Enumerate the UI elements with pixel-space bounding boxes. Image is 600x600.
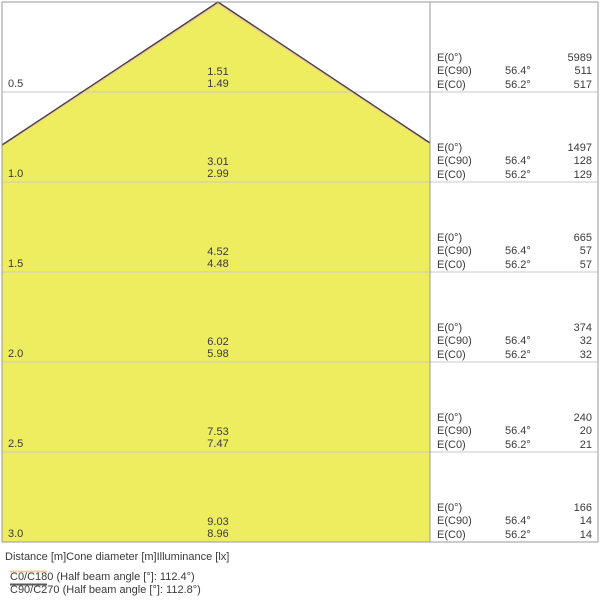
illuminance-value: 14	[553, 529, 592, 542]
illuminance-value: 129	[553, 169, 592, 182]
illuminance-value: 517	[553, 79, 592, 92]
illuminance-row: E(C0) 56.2° 57	[437, 259, 592, 272]
distance-label: 0.5	[8, 78, 23, 91]
beam-angle-value	[505, 412, 553, 425]
illuminance-value: 20	[553, 425, 592, 438]
cone-diameter-c0: 2.99	[178, 168, 258, 180]
photometric-label: E(C0)	[437, 259, 505, 272]
cone-diameter-label: 9.03 8.96	[178, 516, 258, 540]
illuminance-row: E(0°) 240	[437, 412, 592, 425]
illuminance-row: E(C90) 56.4° 14	[437, 515, 592, 528]
cone-diameter-c0: 4.48	[178, 258, 258, 270]
cone-diameter-c90: 9.03	[178, 516, 258, 528]
illuminance-row: E(C0) 56.2° 32	[437, 349, 592, 362]
beam-angle-value: 56.2°	[505, 79, 553, 92]
distance-label: 3.0	[8, 528, 23, 541]
beam-angle-value: 56.4°	[505, 425, 553, 438]
photometric-label: E(0°)	[437, 232, 505, 245]
beam-angle-value: 56.2°	[505, 349, 553, 362]
distance-label: 2.5	[8, 438, 23, 451]
illuminance-block: E(0°) 240 E(C90) 56.4° 20 E(C0) 56.2° 21	[430, 412, 598, 452]
cone-diameter-c0: 5.98	[178, 348, 258, 360]
illuminance-value: 57	[553, 245, 592, 258]
beam-angle-value: 56.4°	[505, 515, 553, 528]
illuminance-row: E(C0) 56.2° 21	[437, 439, 592, 452]
beam-angle-value	[505, 142, 553, 155]
illuminance-value: 240	[553, 412, 592, 425]
illuminance-value: 32	[553, 335, 592, 348]
illuminance-block: E(0°) 374 E(C90) 56.4° 32 E(C0) 56.2° 32	[430, 322, 598, 362]
illuminance-value: 511	[553, 65, 592, 78]
photometric-label: E(C90)	[437, 65, 505, 78]
cone-diameter-c90: 4.52	[178, 246, 258, 258]
distance-label: 1.5	[8, 258, 23, 271]
cone-diameter-c90: 7.53	[178, 426, 258, 438]
illuminance-row: E(C0) 56.2° 517	[437, 79, 592, 92]
legend-item-c0: C0/C180 (Half beam angle [°]: 112.4°)	[10, 570, 195, 583]
photometric-label: E(0°)	[437, 412, 505, 425]
photometric-label: E(0°)	[437, 142, 505, 155]
illuminance-row: E(C90) 56.4° 20	[437, 425, 592, 438]
beam-angle-value: 56.4°	[505, 155, 553, 168]
photometric-label: E(C0)	[437, 79, 505, 92]
beam-angle-value: 56.4°	[505, 335, 553, 348]
illuminance-block: E(0°) 5989 E(C90) 56.4° 511 E(C0) 56.2° …	[430, 52, 598, 92]
cone-diameter-label: 4.52 4.48	[178, 246, 258, 270]
photometric-label: E(0°)	[437, 322, 505, 335]
illuminance-row: E(0°) 1497	[437, 142, 592, 155]
cone-diameter-c0: 1.49	[178, 78, 258, 90]
cone-diameter-c0: 7.47	[178, 438, 258, 450]
illuminance-row: E(0°) 5989	[437, 52, 592, 65]
beam-angle-value: 56.4°	[505, 65, 553, 78]
illuminance-row: E(C90) 56.4° 128	[437, 155, 592, 168]
beam-angle-value: 56.2°	[505, 259, 553, 272]
beam-angle-value	[505, 322, 553, 335]
photometric-label: E(C90)	[437, 515, 505, 528]
beam-angle-value: 56.4°	[505, 245, 553, 258]
illuminance-row: E(0°) 374	[437, 322, 592, 335]
cone-diameter-label: 1.51 1.49	[178, 66, 258, 90]
illuminance-row: E(C0) 56.2° 129	[437, 169, 592, 182]
illuminance-value: 21	[553, 439, 592, 452]
illuminance-value: 665	[553, 232, 592, 245]
beam-angle-value	[505, 52, 553, 65]
photometric-label: E(C90)	[437, 155, 505, 168]
illuminance-row: E(0°) 665	[437, 232, 592, 245]
c90-line-swatch	[10, 583, 47, 586]
photometric-label: E(C90)	[437, 425, 505, 438]
photometric-label: E(C90)	[437, 335, 505, 348]
cone-diameter-label: 3.01 2.99	[178, 156, 258, 180]
cone-diagram: 0.5 1.0 1.5 2.0 2.5 3.0 1.51 1.49 3.01 2…	[0, 0, 600, 600]
beam-angle-value: 56.2°	[505, 439, 553, 452]
illuminance-value: 128	[553, 155, 592, 168]
illuminance-value: 57	[553, 259, 592, 272]
cone-diameter-label: 7.53 7.47	[178, 426, 258, 450]
illuminance-row: E(C90) 56.4° 511	[437, 65, 592, 78]
cone-diameter-c90: 3.01	[178, 156, 258, 168]
illuminance-row: E(C90) 56.4° 32	[437, 335, 592, 348]
illuminance-row: E(C0) 56.2° 14	[437, 529, 592, 542]
photometric-label: E(C0)	[437, 529, 505, 542]
distance-label: 1.0	[8, 168, 23, 181]
beam-angle-value: 56.2°	[505, 169, 553, 182]
illuminance-value: 14	[553, 515, 592, 528]
illuminance-row: E(C90) 56.4° 57	[437, 245, 592, 258]
beam-angle-value	[505, 502, 553, 515]
illuminance-value: 374	[553, 322, 592, 335]
illuminance-block: E(0°) 166 E(C90) 56.4° 14 E(C0) 56.2° 14	[430, 502, 598, 542]
illuminance-value: 1497	[553, 142, 592, 155]
illuminance-value: 5989	[553, 52, 592, 65]
cone-diameter-label: 6.02 5.98	[178, 336, 258, 360]
beam-angle-value	[505, 232, 553, 245]
legend-item-c90: C90/C270 (Half beam angle [°]: 112.8°)	[10, 583, 201, 596]
cone-diameter-c90: 1.51	[178, 66, 258, 78]
c0-line-swatch	[10, 570, 47, 573]
cone-diameter-c0: 8.96	[178, 528, 258, 540]
photometric-label: E(C0)	[437, 349, 505, 362]
illuminance-value: 166	[553, 502, 592, 515]
cone-diameter-c90: 6.02	[178, 336, 258, 348]
illuminance-block: E(0°) 665 E(C90) 56.4° 57 E(C0) 56.2° 57	[430, 232, 598, 272]
illuminance-block: E(0°) 1497 E(C90) 56.4° 128 E(C0) 56.2° …	[430, 142, 598, 182]
illuminance-row: E(0°) 166	[437, 502, 592, 515]
photometric-label: E(0°)	[437, 502, 505, 515]
distance-label: 2.0	[8, 348, 23, 361]
beam-angle-value: 56.2°	[505, 529, 553, 542]
photometric-label: E(C90)	[437, 245, 505, 258]
illuminance-value: 32	[553, 349, 592, 362]
axis-units-caption: Distance [m]Cone diameter [m]Illuminance…	[5, 551, 229, 564]
photometric-label: E(0°)	[437, 52, 505, 65]
photometric-label: E(C0)	[437, 439, 505, 452]
photometric-label: E(C0)	[437, 169, 505, 182]
